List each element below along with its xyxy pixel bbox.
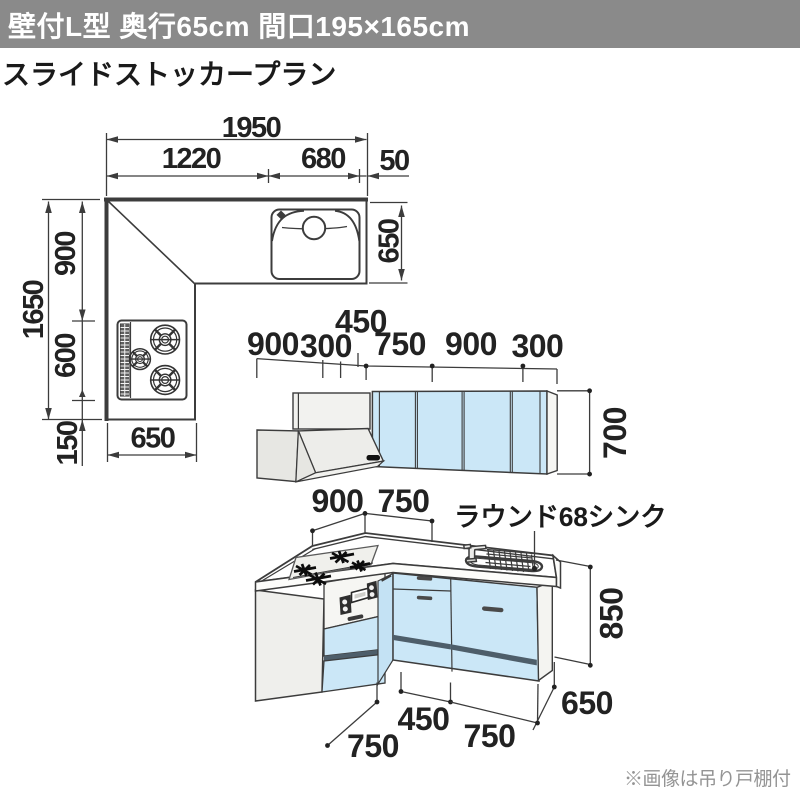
svg-text:900: 900 <box>247 326 299 362</box>
svg-text:650: 650 <box>131 423 175 455</box>
svg-text:750: 750 <box>464 718 516 754</box>
svg-text:750: 750 <box>347 728 399 764</box>
svg-text:680: 680 <box>301 143 345 175</box>
svg-text:900: 900 <box>445 326 497 362</box>
svg-text:50: 50 <box>379 145 409 177</box>
svg-text:450: 450 <box>398 701 450 737</box>
svg-text:150: 150 <box>52 421 84 465</box>
svg-text:※画像は吊り戸棚付: ※画像は吊り戸棚付 <box>624 768 791 790</box>
svg-text:850: 850 <box>594 588 630 640</box>
svg-text:300: 300 <box>511 328 563 364</box>
svg-text:ラウンド68シンク: ラウンド68シンク <box>454 502 666 532</box>
svg-text:900: 900 <box>50 232 82 276</box>
svg-text:650: 650 <box>374 219 406 263</box>
svg-text:650: 650 <box>561 685 613 721</box>
svg-text:壁付L型 奥行65cm 間口195×165cm: 壁付L型 奥行65cm 間口195×165cm <box>8 10 470 42</box>
svg-text:スライドストッカープラン: スライドストッカープラン <box>2 59 336 90</box>
svg-text:1650: 1650 <box>18 280 50 339</box>
svg-text:700: 700 <box>597 407 633 459</box>
svg-text:750: 750 <box>374 326 426 362</box>
svg-text:600: 600 <box>50 334 82 378</box>
svg-text:1220: 1220 <box>162 143 221 175</box>
svg-text:750: 750 <box>378 483 430 519</box>
svg-text:900: 900 <box>312 483 364 519</box>
svg-text:1950: 1950 <box>222 112 281 144</box>
